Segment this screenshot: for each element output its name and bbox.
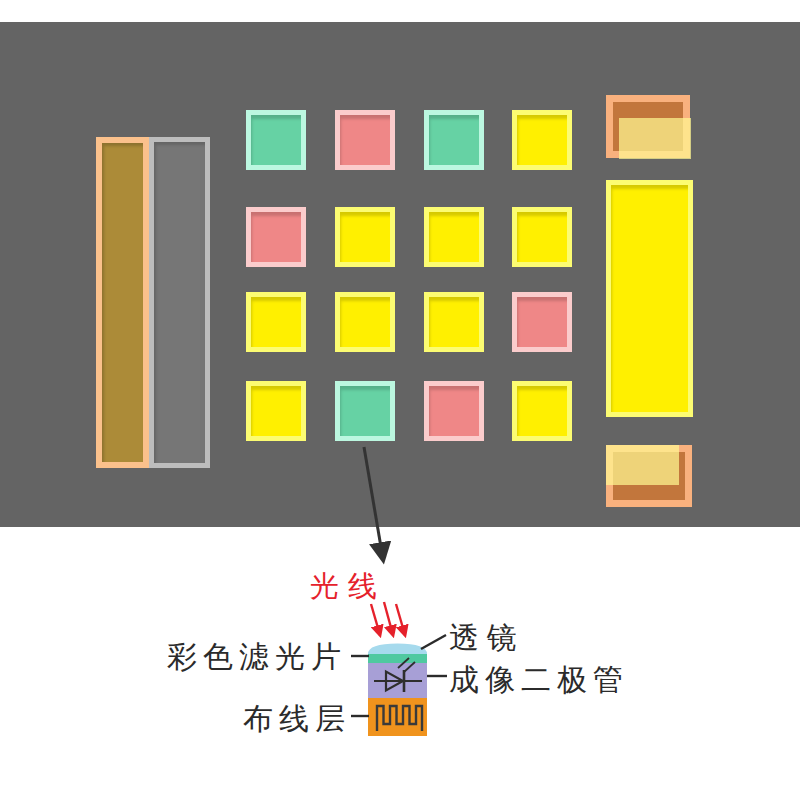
imaging-diode-layer: [368, 663, 427, 698]
filter-cell-yellow: [424, 292, 484, 352]
filter-cell-yellow: [424, 207, 484, 267]
yellow-overlay-top: [619, 118, 691, 159]
filter-cell-green: [424, 110, 484, 170]
olive-column-bar: [96, 137, 149, 468]
lens-label: 透镜: [449, 622, 525, 654]
tall-yellow-bar: [606, 180, 693, 417]
filter-cell-red: [424, 381, 484, 441]
filter-cell-yellow: [246, 381, 306, 441]
color-filter-label: 彩色滤光片: [167, 641, 347, 673]
wiring-layer-label: 布线层: [243, 703, 351, 735]
filter-cell-yellow: [335, 292, 395, 352]
light-ray-arrows: [371, 602, 405, 635]
lens-shape: [368, 644, 427, 655]
light-ray-label: 光线: [310, 571, 386, 601]
filter-cell-red: [335, 110, 395, 170]
filter-cell-green: [335, 381, 395, 441]
filter-cell-yellow: [512, 381, 572, 441]
color-filter-layer: [368, 654, 427, 663]
sensor-array-panel: [0, 22, 800, 527]
imaging-diode-label: 成像二极管: [449, 664, 629, 696]
filter-cell-yellow: [512, 207, 572, 267]
filter-cell-yellow: [335, 207, 395, 267]
yellow-overlay-bottom: [606, 445, 679, 485]
filter-cell-red: [512, 292, 572, 352]
filter-cell-yellow: [246, 292, 306, 352]
filter-cell-yellow: [512, 110, 572, 170]
gray-column-bar: [149, 137, 210, 468]
filter-cell-red: [246, 207, 306, 267]
sensor-diagram: 光线 彩色滤光片 透镜 成像二极管 布线层: [0, 0, 800, 800]
filter-cell-green: [246, 110, 306, 170]
wiring-layer: [368, 698, 427, 736]
